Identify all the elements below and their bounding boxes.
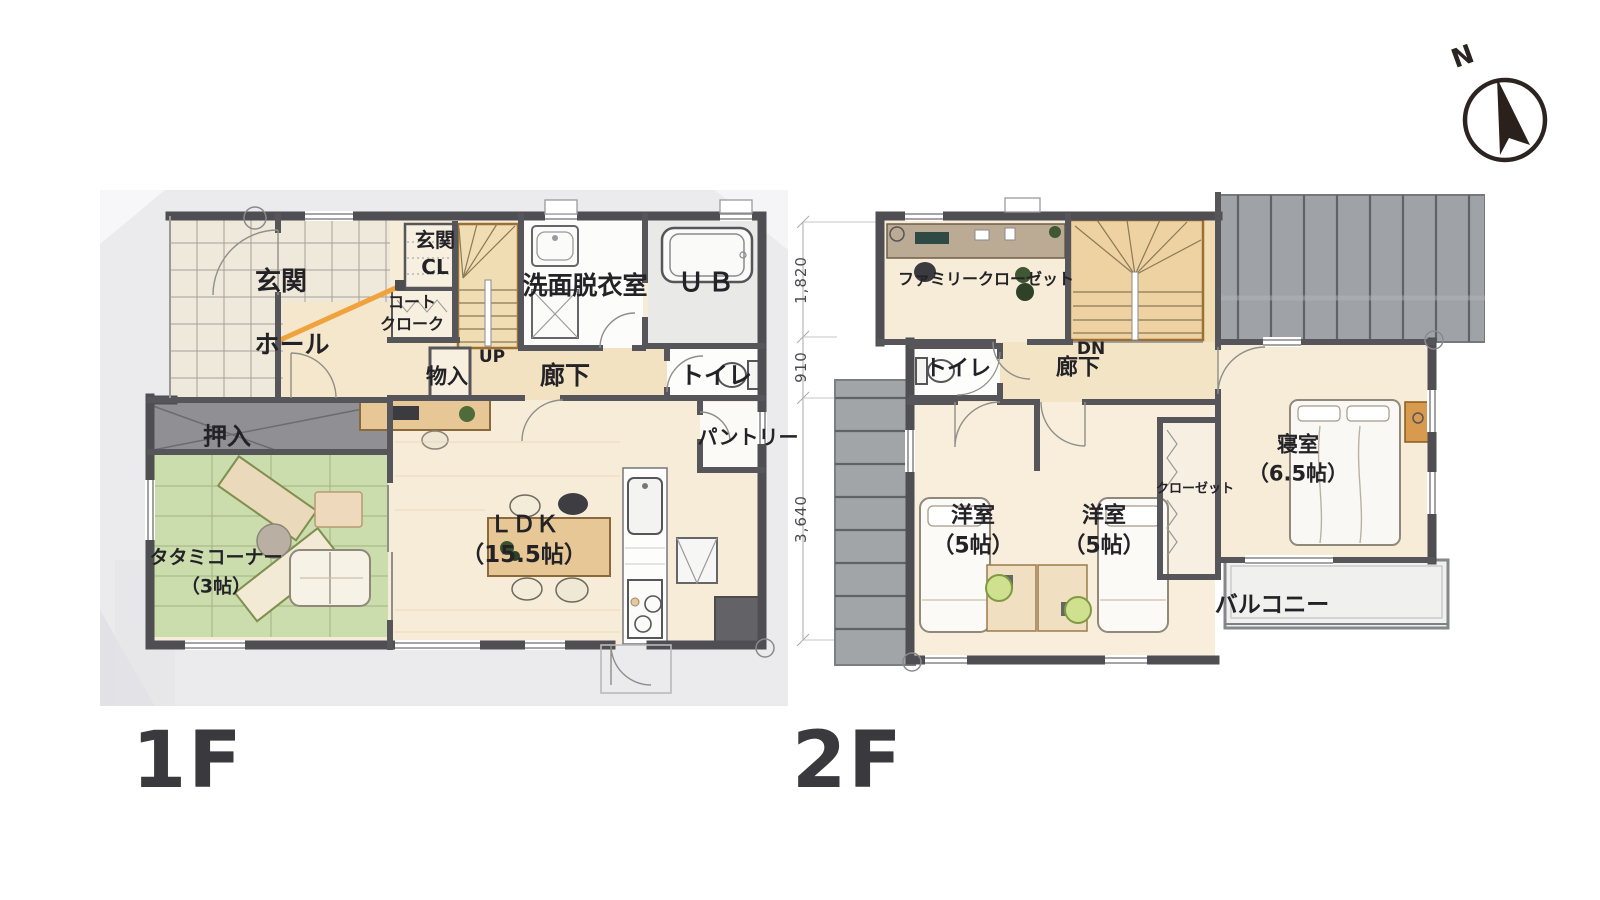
- stairs-up: [458, 224, 518, 348]
- floor2-drawing: [775, 180, 1485, 725]
- dimension-1820: 1,820: [792, 256, 810, 304]
- floor1-drawing: [95, 180, 795, 715]
- floor2-title: 2F: [792, 716, 904, 806]
- compass: [1425, 38, 1595, 188]
- floorplan-page: N 玄関 玄関 CL コート クローク ホール UP 物入 廊下 洗面脱衣室 Ｕ…: [0, 0, 1600, 900]
- washbasin: [532, 226, 578, 266]
- floor1-title: 1F: [132, 716, 244, 806]
- oshiire-closet: [153, 402, 388, 452]
- bathtub: [662, 228, 752, 282]
- pantry-floor: [700, 402, 762, 470]
- kitchen-cabinet: [715, 597, 760, 642]
- floor-cushion: [315, 492, 362, 527]
- post: [395, 280, 405, 290]
- desk-chair: [1065, 597, 1091, 623]
- roof-left: [835, 380, 915, 665]
- desk-chair: [986, 575, 1012, 601]
- stairs-down: [1070, 220, 1203, 342]
- study-desks: [986, 565, 1091, 631]
- refrigerator: [677, 538, 717, 583]
- dimension-3640: 3,640: [792, 495, 810, 543]
- toilet-fixture-2f: [916, 358, 954, 384]
- monoire-box: [430, 348, 470, 398]
- kitchen-counter: [623, 468, 667, 644]
- side-table: [257, 524, 291, 558]
- bed-left: [920, 498, 990, 632]
- balcony: [1225, 560, 1448, 628]
- roof-top-right: [1218, 195, 1485, 342]
- sofa: [290, 550, 370, 606]
- compass-needle-icon: [1497, 78, 1530, 155]
- dimension-910: 910: [792, 351, 810, 383]
- washing-machine: [532, 290, 578, 338]
- toilet-fixture-1f: [718, 361, 760, 389]
